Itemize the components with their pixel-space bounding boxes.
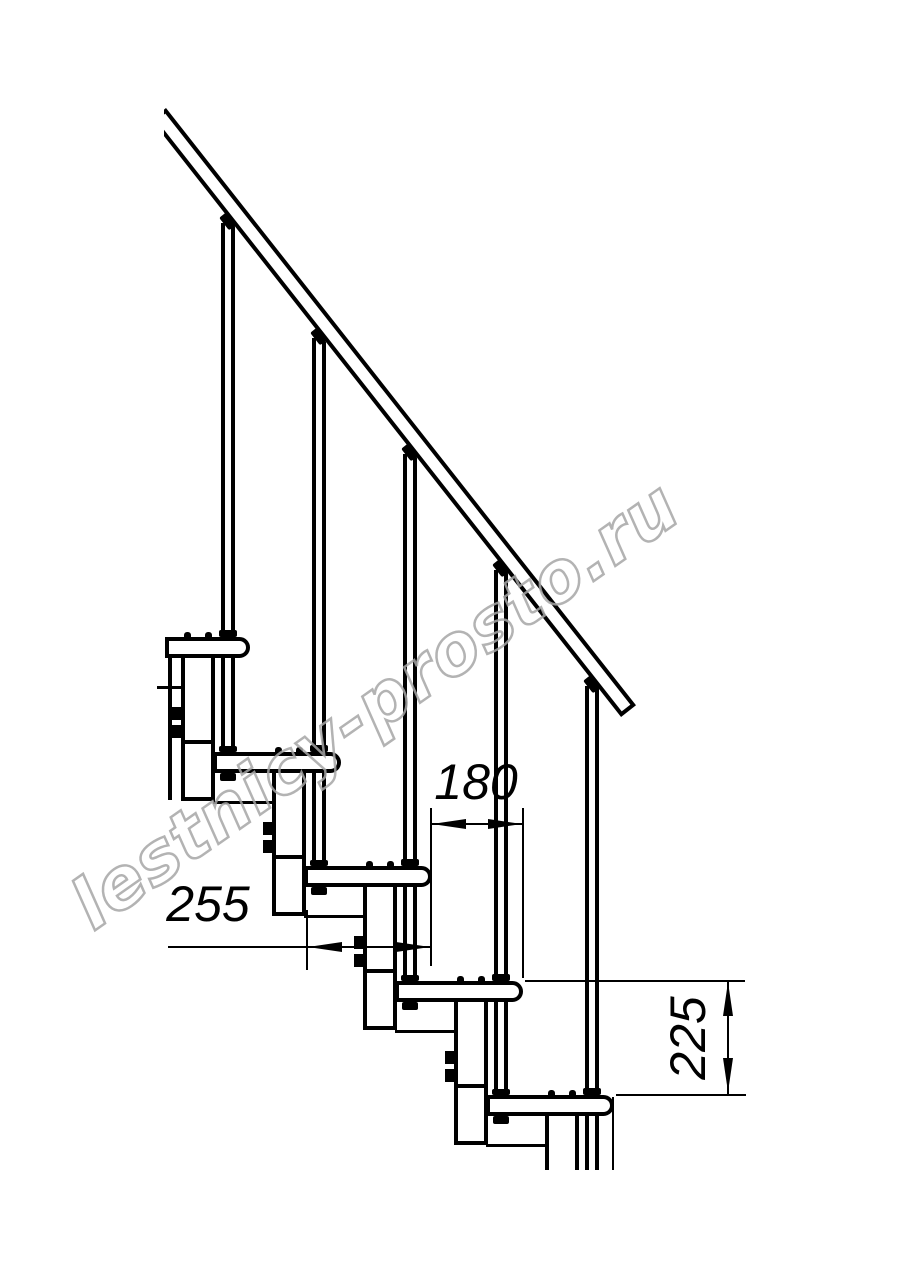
watermark-text: lestnicy-prosto.ru <box>56 464 694 945</box>
watermark: lestnicy-prosto.ru <box>0 0 914 1280</box>
staircase-side-view-drawing: 180 255 225 lestnicy-prosto.ru <box>0 0 914 1280</box>
